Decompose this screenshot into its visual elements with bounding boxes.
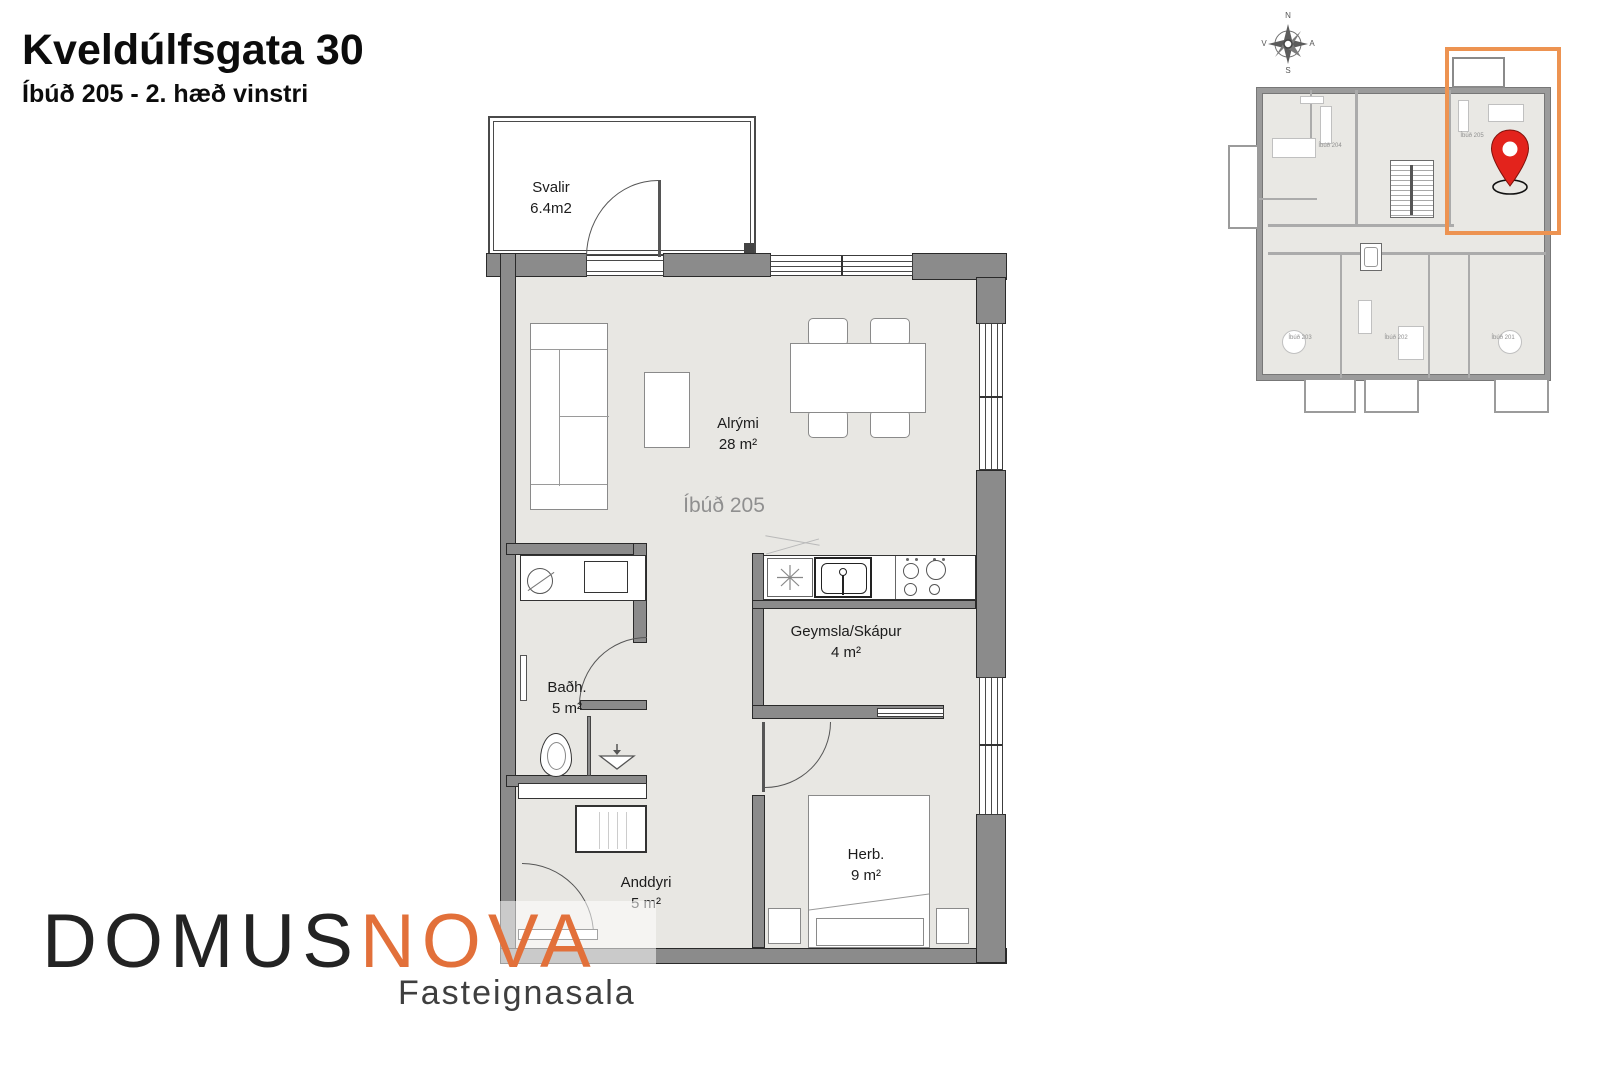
sliding-door-line (878, 713, 943, 714)
stair-rail (1410, 165, 1413, 215)
page-title: Kveldúlfsgata 30 (22, 26, 364, 75)
window-right-living (979, 323, 1003, 470)
minimap-wall (1428, 254, 1430, 378)
dining-table (790, 343, 926, 413)
elevator-cab (1364, 247, 1378, 267)
hall-shelf (518, 783, 647, 799)
minimap-staircase (1390, 160, 1434, 218)
brand-word-accent: NOVA (360, 899, 598, 984)
hall-wardrobe (575, 805, 647, 853)
bath-sink (584, 561, 628, 593)
wardrobe-line (617, 812, 618, 849)
stove-burner (929, 584, 940, 595)
bath-radiator (520, 655, 527, 701)
room-label-herbergi: Herb. 9 m² (848, 844, 885, 886)
minimap-balcony (1304, 378, 1356, 413)
brand-logo: DOMUSNOVA (42, 898, 598, 985)
sofa-line (559, 416, 609, 417)
sofa-line (531, 349, 607, 350)
minimap-wing-left (1228, 145, 1259, 229)
minimap-wall (1340, 254, 1342, 378)
room-name: Herb. (848, 844, 885, 865)
room-area: 28 m² (717, 434, 759, 455)
minimap-furniture (1398, 326, 1424, 360)
room-area: 5 m² (547, 698, 586, 719)
window-line (991, 678, 992, 814)
minimap-balcony (1364, 378, 1419, 413)
minimap-wall (1259, 198, 1317, 200)
wall-top-right (912, 253, 1007, 280)
minimap-furniture (1282, 330, 1306, 354)
compass-icon: N S V A (1260, 8, 1316, 74)
window-divider (841, 256, 843, 275)
room-name: Svalir (530, 177, 572, 198)
room-area: 6.4m2 (530, 198, 572, 219)
compass-south: S (1285, 66, 1290, 74)
dishwasher-icon (767, 558, 813, 597)
bed-blanket-line (809, 884, 929, 914)
bath-wall-top (506, 543, 647, 555)
bath-mirror (527, 568, 553, 594)
bed-footboard (816, 918, 924, 946)
minimap-furniture (1320, 106, 1332, 144)
mirror-line (528, 572, 555, 591)
wall-top-mid (663, 253, 771, 277)
minimap-apartment-label: Íbúð 202 (1384, 335, 1407, 341)
room-name: Geymsla/Skápur (791, 621, 902, 642)
bedroom-wall-left (752, 795, 765, 948)
minimap-wall (1468, 254, 1470, 378)
compass-east: A (1309, 39, 1315, 48)
stove-knob (942, 558, 945, 561)
window-top (770, 255, 913, 276)
window-right-bedroom (979, 677, 1003, 815)
balcony-door-leaf (658, 180, 661, 257)
minimap-furniture (1272, 138, 1316, 158)
balcony-door-threshold (586, 255, 664, 276)
dining-chair (870, 410, 910, 438)
nightstand (768, 908, 801, 944)
room-name: Baðh. (547, 677, 586, 698)
room-label-geymsla: Geymsla/Skápur 4 m² (791, 621, 902, 663)
sofa-line (531, 484, 607, 485)
kitchen-sink (814, 557, 872, 598)
room-label-alrymi: Alrými 28 m² (717, 413, 759, 455)
compass-west: V (1261, 39, 1267, 48)
wall-right-mid (976, 470, 1006, 678)
sofa-line (559, 349, 560, 486)
sink-faucet-knob (839, 568, 847, 576)
coffee-table (644, 372, 690, 448)
window-divider (980, 396, 1002, 398)
minimap-corridor-wall (1268, 252, 1546, 255)
room-name: Alrými (717, 413, 759, 434)
stove-knob (906, 558, 909, 561)
minimap-furniture (1358, 300, 1372, 334)
shower-drain-icon (598, 744, 636, 770)
minimap-corridor-wall (1268, 224, 1454, 227)
dining-chair (870, 318, 910, 346)
storage-sliding-door (877, 708, 944, 717)
stove-burner (904, 583, 917, 596)
room-label-svalir: Svalir 6.4m2 (530, 177, 572, 219)
minimap-wall (1355, 90, 1358, 224)
window-line (985, 678, 986, 814)
wall-left (500, 253, 516, 963)
minimap-apartment-label: Íbúð 203 (1288, 335, 1311, 341)
window-line (997, 678, 998, 814)
stove (895, 556, 958, 599)
brand-tagline: Fasteignasala (398, 974, 636, 1013)
apartment-number-label: Íbúð 205 (683, 495, 765, 516)
page-subtitle: Íbúð 205 - 2. hæð vinstri (22, 80, 308, 109)
wardrobe-line (626, 812, 627, 849)
minimap-furniture (1498, 330, 1522, 354)
minimap-apartment-label: Íbúð 201 (1491, 335, 1514, 341)
minimap-furniture (1300, 96, 1324, 104)
toilet-inner (547, 742, 566, 770)
minimap-elevator (1360, 243, 1382, 271)
wardrobe-line (608, 812, 609, 849)
compass-north: N (1285, 11, 1291, 20)
stove-burner (903, 563, 919, 579)
room-name: Anddyri (621, 872, 672, 893)
wall-right-lower (976, 814, 1006, 963)
wall-right-upper (976, 277, 1006, 324)
nightstand (936, 908, 969, 944)
brand-word-primary: DOMUS (42, 899, 360, 984)
wardrobe-line (599, 812, 600, 849)
floorplan-page: Kveldúlfsgata 30 Íbúð 205 - 2. hæð vinst… (0, 0, 1600, 1067)
bath-divider-wall (587, 716, 591, 776)
window-divider (980, 744, 1002, 746)
threshold-line (587, 271, 663, 272)
dining-chair (808, 318, 848, 346)
sofa (530, 323, 608, 510)
minimap-balcony (1494, 378, 1549, 413)
stove-knob (915, 558, 918, 561)
stove-burner (926, 560, 946, 580)
kitchen-counter-wall (752, 600, 976, 609)
threshold-line (587, 260, 663, 261)
sink-faucet-stem (842, 573, 844, 595)
dining-chair (808, 410, 848, 438)
room-area: 4 m² (791, 642, 902, 663)
room-area: 9 m² (848, 865, 885, 886)
location-pin-icon (1488, 128, 1532, 198)
minimap-apartment-label: Íbúð 204 (1318, 143, 1341, 149)
toilet (540, 733, 572, 777)
room-label-badherbergi: Baðh. 5 m² (547, 677, 586, 719)
